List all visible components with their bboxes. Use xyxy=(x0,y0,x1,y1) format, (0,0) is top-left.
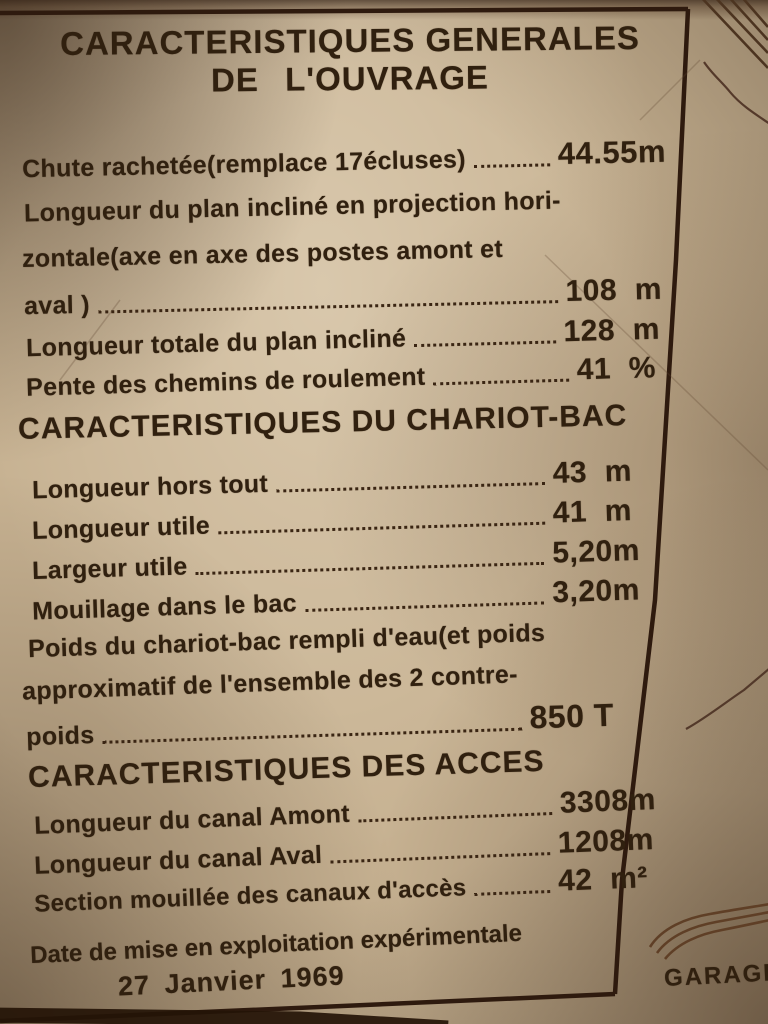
row-value: 1208m xyxy=(557,823,654,861)
row-label: Largeur utile xyxy=(32,552,188,586)
dotted-leader xyxy=(414,340,555,347)
row-value: 43 m xyxy=(552,455,632,491)
map-squiggle-line xyxy=(704,62,768,124)
dotted-leader xyxy=(434,379,569,386)
garage-label: GARAGE xyxy=(663,959,768,993)
dotted-leader xyxy=(358,812,552,822)
row-value: 128 m xyxy=(563,313,660,350)
row-value: 3308m xyxy=(559,783,656,821)
poster-title-line2: DE L'OUVRAGE xyxy=(40,57,660,101)
poster-photo: CARACTERISTIQUES GENERALES DE L'OUVRAGE … xyxy=(0,0,768,1024)
map-diagonal-line xyxy=(686,668,768,729)
row-value: 5,20m xyxy=(552,534,641,571)
map-hatch-lines xyxy=(700,0,768,68)
row-value: 850 T xyxy=(529,697,614,737)
row-value: 42 m² xyxy=(557,861,648,898)
row-value: 44.55m xyxy=(557,134,666,172)
poster-title-line1: CARACTERISTIQUES GENERALES xyxy=(40,19,660,63)
row-label: poids xyxy=(26,721,95,752)
bottom-edge-band xyxy=(0,1015,448,1024)
row-value: 108 m xyxy=(565,273,662,309)
frame-top-border xyxy=(0,9,688,13)
row-label: aval ) xyxy=(24,291,90,321)
dotted-leader xyxy=(305,601,545,612)
map-contour-lines xyxy=(650,904,768,959)
row-label: Longueur utile xyxy=(32,512,211,546)
dotted-leader xyxy=(475,890,551,896)
row-value: 3,20m xyxy=(552,573,641,610)
dotted-leader xyxy=(276,482,545,493)
row-value: 41 m xyxy=(552,494,632,530)
row-value: 41 % xyxy=(576,351,656,387)
dotted-leader xyxy=(474,163,550,168)
dotted-leader xyxy=(330,852,550,863)
